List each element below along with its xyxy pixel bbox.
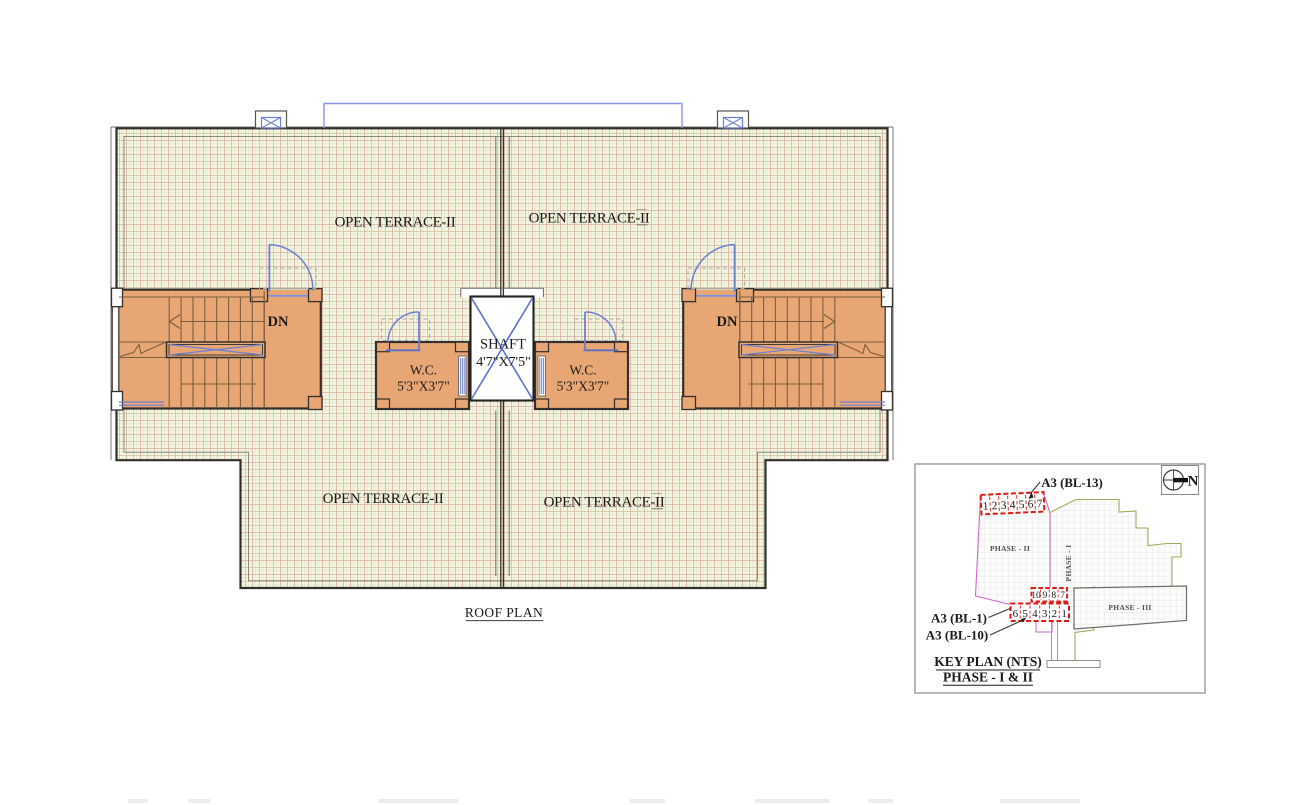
svg-text:KEY PLAN (NTS): KEY PLAN (NTS) <box>934 654 1042 669</box>
svg-text:4: 4 <box>1032 608 1038 620</box>
svg-text:DN: DN <box>268 314 289 330</box>
svg-text:OPEN TERRACE-II: OPEN TERRACE-II <box>529 211 650 227</box>
svg-text:SHAFT: SHAFT <box>480 337 526 353</box>
svg-text:7: 7 <box>1060 591 1065 601</box>
svg-text:PHASE - III: PHASE - III <box>1108 603 1151 612</box>
svg-text:1: 1 <box>1061 608 1067 620</box>
svg-text:PHASE - II: PHASE - II <box>990 544 1030 553</box>
svg-text:DN: DN <box>717 314 738 330</box>
svg-text:PHASE - I & II: PHASE - I & II <box>943 670 1033 685</box>
svg-text:2: 2 <box>991 500 998 512</box>
svg-text:W.C.: W.C. <box>410 363 437 378</box>
svg-text:OPEN TERRACE-II: OPEN TERRACE-II <box>544 495 665 511</box>
svg-text:A3 (BL-1): A3 (BL-1) <box>931 611 987 626</box>
svg-text:9: 9 <box>1042 591 1047 601</box>
svg-text:6: 6 <box>1013 608 1019 620</box>
svg-text:3: 3 <box>1042 608 1048 620</box>
svg-text:8: 8 <box>1051 591 1056 601</box>
svg-text:N: N <box>1188 474 1199 490</box>
svg-text:A3 (BL-13): A3 (BL-13) <box>1041 476 1103 490</box>
svg-text:5: 5 <box>1018 499 1025 511</box>
svg-text:6: 6 <box>1027 499 1034 511</box>
svg-text:5'3"X3'7": 5'3"X3'7" <box>397 379 450 394</box>
svg-text:PHASE - I: PHASE - I <box>1064 545 1073 582</box>
svg-text:7: 7 <box>1036 498 1043 510</box>
svg-text:10: 10 <box>1031 591 1041 601</box>
svg-text:1: 1 <box>982 501 989 513</box>
svg-text:OPEN TERRACE-II: OPEN TERRACE-II <box>323 491 444 507</box>
svg-text:ROOF PLAN: ROOF PLAN <box>465 605 543 620</box>
svg-text:OPEN TERRACE-II: OPEN TERRACE-II <box>335 215 456 231</box>
svg-text:4'7"X7'5": 4'7"X7'5" <box>476 355 531 370</box>
svg-text:4: 4 <box>1009 499 1016 511</box>
svg-text:A3 (BL-10): A3 (BL-10) <box>926 628 988 643</box>
svg-text:5'3"X3'7": 5'3"X3'7" <box>557 379 610 394</box>
svg-text:W.C.: W.C. <box>569 363 596 378</box>
svg-text:3: 3 <box>1000 500 1007 512</box>
svg-text:2: 2 <box>1052 608 1058 620</box>
